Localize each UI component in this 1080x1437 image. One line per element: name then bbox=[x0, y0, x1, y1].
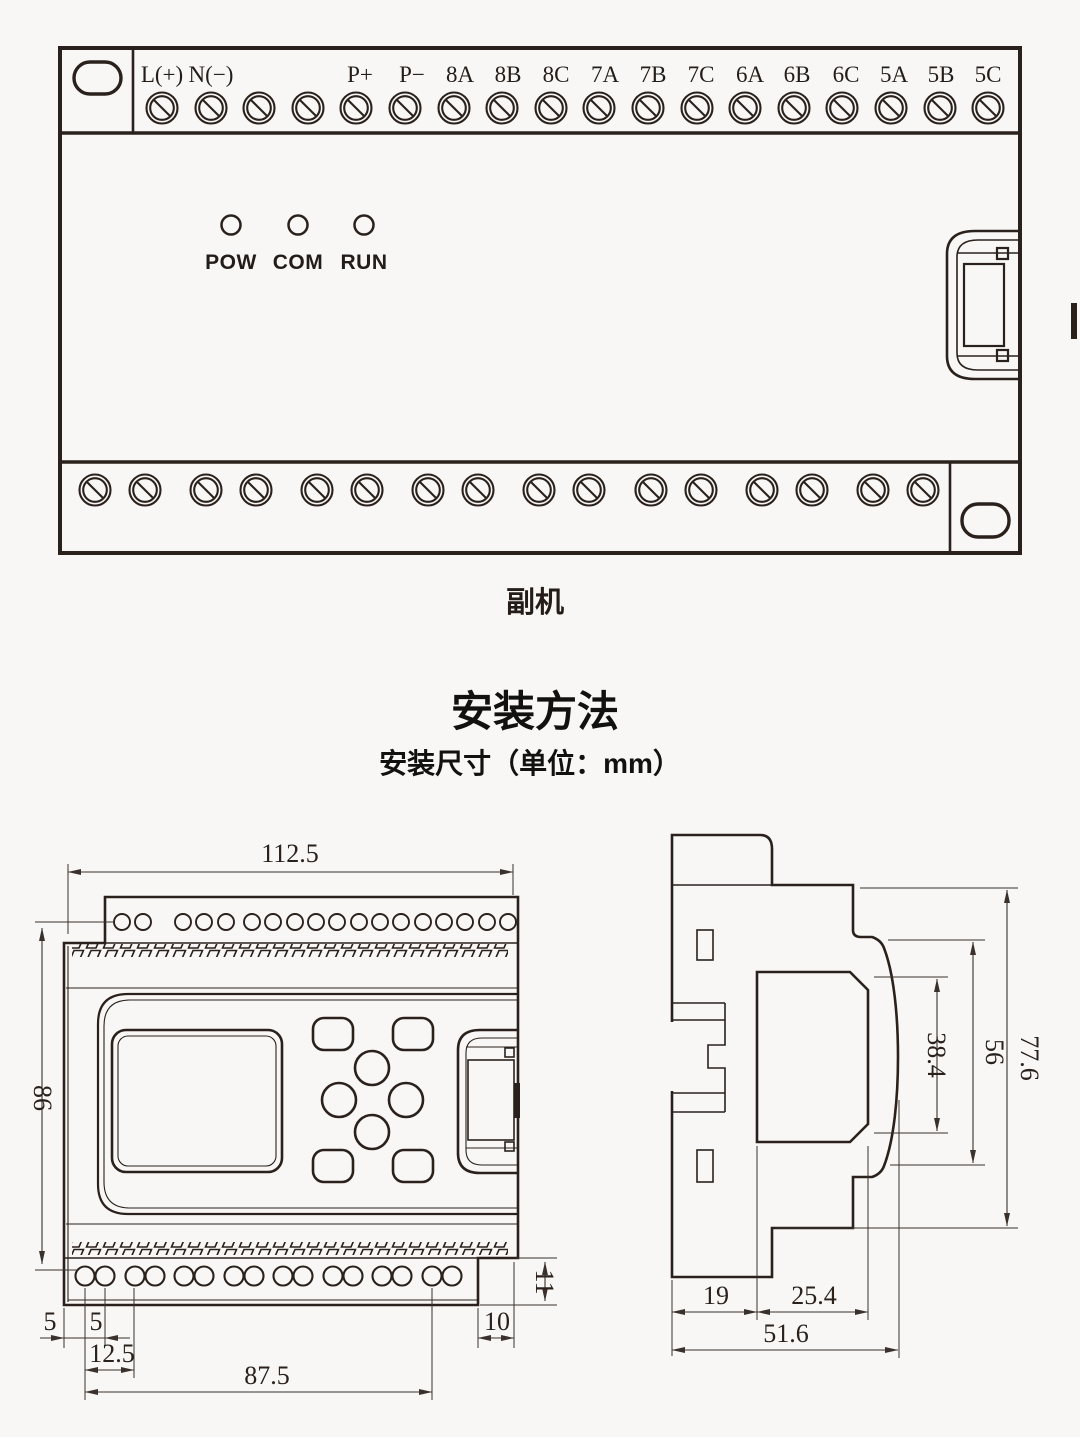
section-subtitle: 安装尺寸（单位：mm） bbox=[379, 747, 681, 779]
dim-hole-span: 87.5 bbox=[244, 1361, 290, 1390]
com-led-icon bbox=[289, 216, 308, 235]
side-dimensions: 38.4 56 77.6 19 25.4 51.6 bbox=[672, 888, 1044, 1358]
key-top-right bbox=[393, 1018, 433, 1050]
side-slot-top bbox=[697, 930, 713, 960]
run-led-icon bbox=[355, 216, 374, 235]
led-indicators: POW COM RUN bbox=[205, 216, 387, 275]
terminal-label: 5C bbox=[975, 62, 1002, 87]
dim-back-depth: 19 bbox=[703, 1281, 729, 1310]
top-terminal-screws bbox=[147, 93, 1004, 124]
key-up bbox=[355, 1051, 389, 1085]
edge-mark bbox=[1071, 303, 1077, 339]
bottom-right-mounting-slot bbox=[962, 504, 1009, 537]
side-view-drawing: 38.4 56 77.6 19 25.4 51.6 bbox=[672, 835, 1044, 1358]
terminal-label: P+ bbox=[347, 62, 373, 87]
keypad bbox=[313, 1018, 433, 1182]
din-rail-channel bbox=[672, 1003, 725, 1112]
dim-hole-pitch: 5 bbox=[90, 1307, 103, 1336]
terminal-label: 8B bbox=[495, 62, 522, 87]
face-frame-outer bbox=[98, 994, 518, 1214]
top-left-mounting-slot bbox=[74, 62, 121, 94]
terminal-label: 6A bbox=[736, 62, 765, 87]
key-left bbox=[322, 1083, 356, 1117]
dim-total-depth: 51.6 bbox=[763, 1319, 809, 1348]
top-terminal-labels: L(+) N(−) P+ P− 8A 8B 8C 7A 7B 7C 6A 6B … bbox=[141, 62, 1002, 87]
terminal-label: 6C bbox=[833, 62, 860, 87]
display-screen bbox=[112, 1030, 282, 1172]
key-right bbox=[389, 1083, 423, 1117]
pow-led-label: POW bbox=[205, 251, 257, 274]
key-down bbox=[355, 1115, 389, 1149]
expansion-connector bbox=[947, 231, 1018, 379]
side-slot-bottom bbox=[697, 1150, 713, 1182]
side-body-outline bbox=[672, 835, 898, 1277]
terminal-label: 5A bbox=[880, 62, 909, 87]
dim-pair-pitch: 12.5 bbox=[89, 1339, 135, 1368]
terminal-label: L(+) bbox=[141, 62, 183, 87]
section-titles: 安装方法 安装尺寸（单位：mm） bbox=[379, 688, 681, 779]
bottom-terminal-screws bbox=[80, 475, 939, 506]
vent-strip-bottom bbox=[72, 1242, 508, 1255]
key-bottom-right bbox=[393, 1150, 433, 1182]
pow-led-icon bbox=[222, 216, 241, 235]
diagram-svg: L(+) N(−) P+ P− 8A 8B 8C 7A 7B 7C 6A 6B … bbox=[0, 0, 1080, 1437]
front-bottom-holes bbox=[76, 1267, 462, 1286]
top-device-drawing: L(+) N(−) P+ P− 8A 8B 8C 7A 7B 7C 6A 6B … bbox=[60, 48, 1077, 619]
dim-edge-offset: 5 bbox=[44, 1307, 57, 1336]
device-caption: 副机 bbox=[506, 586, 564, 619]
display-screen-inner bbox=[118, 1036, 276, 1166]
dim-notch-height: 11 bbox=[530, 1269, 559, 1294]
dim-total-height: 77.6 bbox=[1015, 1035, 1044, 1081]
terminal-label: 7B bbox=[640, 62, 667, 87]
terminal-label: N(−) bbox=[189, 62, 234, 87]
dim-panel-height: 38.4 bbox=[922, 1032, 951, 1078]
run-led-label: RUN bbox=[341, 251, 388, 274]
front-connector bbox=[458, 1030, 520, 1173]
dim-width: 112.5 bbox=[261, 839, 319, 868]
dim-notch-width: 10 bbox=[484, 1307, 510, 1336]
front-view-drawing: 112.5 86 5 5 12.5 87.5 10 bbox=[28, 839, 559, 1400]
terminal-label: 6B bbox=[784, 62, 811, 87]
dim-height: 86 bbox=[28, 1085, 57, 1111]
terminal-label: 7A bbox=[591, 62, 620, 87]
terminal-label: 8C bbox=[543, 62, 570, 87]
terminal-label: P− bbox=[399, 62, 425, 87]
terminal-label: 5B bbox=[928, 62, 955, 87]
section-title: 安装方法 bbox=[451, 688, 619, 735]
terminal-label: 8A bbox=[446, 62, 475, 87]
vent-strip-top bbox=[72, 944, 508, 957]
key-bottom-left bbox=[313, 1150, 353, 1182]
dim-face-height: 56 bbox=[980, 1039, 1009, 1065]
dim-mid-depth: 25.4 bbox=[791, 1281, 837, 1310]
installation-diagram-page: L(+) N(−) P+ P− 8A 8B 8C 7A 7B 7C 6A 6B … bbox=[0, 0, 1080, 1437]
com-led-label: COM bbox=[273, 251, 324, 274]
key-top-left bbox=[313, 1018, 353, 1050]
front-top-holes bbox=[114, 914, 516, 930]
side-face-panel bbox=[757, 972, 868, 1142]
terminal-label: 7C bbox=[688, 62, 715, 87]
